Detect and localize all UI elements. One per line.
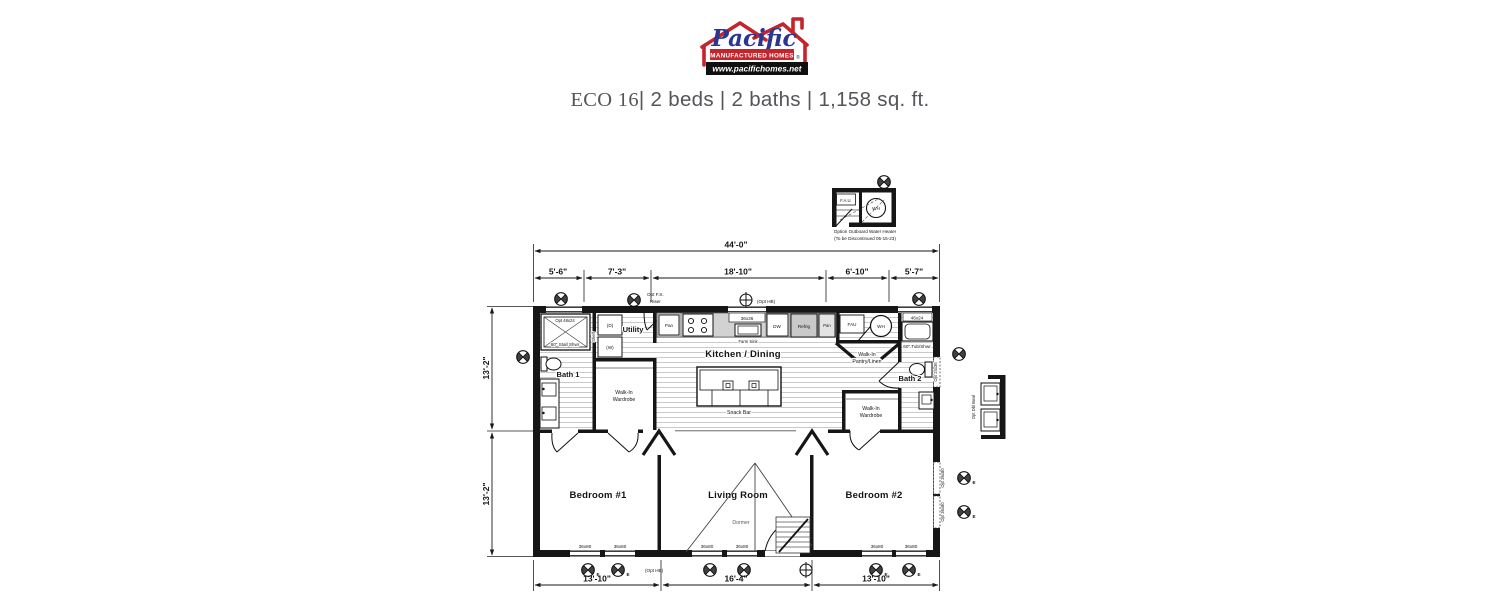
pantry-cabinet-label: Pan bbox=[665, 323, 674, 328]
egress-label: E bbox=[626, 572, 629, 577]
lower-rooms: Bedroom #1 Living Room Bedroom #2 Dormer bbox=[570, 463, 903, 553]
vent-fan-icon bbox=[555, 293, 568, 306]
bath2-window-label: 46x24 bbox=[911, 316, 924, 321]
dryer-label: (D) bbox=[607, 323, 614, 328]
egress-label: E bbox=[972, 480, 975, 485]
vent-fan-icon bbox=[704, 564, 717, 577]
pantry-label-1: Walk-In bbox=[858, 352, 876, 358]
dim-top-3: 18'-10" bbox=[724, 267, 752, 277]
dim-overall-width: 44'-0" bbox=[724, 240, 747, 250]
optional-window-label-36x80: Opt 36x80 bbox=[940, 468, 945, 488]
wardrobe2-label-1: Walk-In bbox=[862, 406, 880, 412]
window-size-label: 36x80 bbox=[701, 544, 714, 549]
room-label-living: Living Room bbox=[708, 490, 768, 501]
window-size-label: 36x80 bbox=[871, 544, 884, 549]
dim-bottom-1: 13'-10" bbox=[583, 574, 611, 584]
detail-wh-label: WH bbox=[872, 206, 880, 211]
room-label-bath2: Bath 2 bbox=[899, 374, 922, 383]
egress-label: E bbox=[972, 514, 975, 519]
vent-fan-icon bbox=[958, 472, 971, 485]
bottom-window-labels: 36x80 36x80 36x80 36x80 36x80 36x80 bbox=[579, 544, 918, 549]
wardrobe1-label-2: Wardrobe bbox=[613, 397, 636, 403]
vent-fan-icon bbox=[612, 564, 625, 577]
shower-label: 60" Stall Shwr bbox=[551, 342, 580, 347]
detail-caption-line1: Option Outboard Water Heater bbox=[834, 229, 897, 234]
tub-label: 60" Tub/Shwr bbox=[903, 344, 931, 349]
wardrobe1-label-1: Walk-In bbox=[615, 390, 633, 396]
opt-fs-riser-label-1: Opt F.S. bbox=[647, 292, 664, 297]
wardrobe2-label-2: Wardrobe bbox=[860, 413, 883, 419]
window-size-label: 36x80 bbox=[736, 544, 749, 549]
optional-window-label: Opt 48x24 bbox=[555, 318, 575, 323]
vent-fan-icon bbox=[628, 294, 641, 307]
room-label-utility: Utility bbox=[623, 325, 645, 334]
snack-bar-label: Snack Bar bbox=[727, 410, 751, 416]
bottom-wall-windows bbox=[570, 551, 926, 557]
dim-top-4: 6'-10" bbox=[845, 267, 868, 277]
fau-label: FAU bbox=[848, 322, 857, 327]
dormer-label: Dormer bbox=[732, 520, 750, 526]
vent-fan-icon bbox=[953, 348, 966, 361]
opt-hb-label: (Opt HB) bbox=[757, 299, 776, 304]
water-heater-option-detail: F.A.U. WH Option Outboard Water Heater (… bbox=[832, 176, 897, 241]
kitchen-window-label: 36x36 bbox=[741, 316, 754, 321]
dim-top-1: 5'-6" bbox=[549, 267, 567, 277]
dishwasher-label: DW bbox=[773, 324, 781, 329]
dbl-bowl-caption: Opt Dbl Bowl bbox=[971, 395, 976, 420]
vent-fan-icon bbox=[517, 351, 530, 364]
washer-label: (W) bbox=[606, 345, 614, 350]
hose-bib-icon bbox=[740, 292, 752, 308]
room-label-bedroom2: Bedroom #2 bbox=[846, 490, 903, 501]
dim-bottom-2: 16'-4" bbox=[724, 574, 747, 584]
window-size-label: 36x80 bbox=[579, 544, 592, 549]
room-label-bath1: Bath 1 bbox=[557, 370, 580, 379]
flyer-page: { "logo": { "brand": "Pacific", "tagline… bbox=[0, 0, 1500, 613]
refrigerator-label: Refrig bbox=[798, 324, 811, 329]
dim-left-1: 13'-2" bbox=[481, 356, 491, 379]
detail-fau-label: F.A.U. bbox=[840, 198, 851, 203]
window-size-label: 36x80 bbox=[905, 544, 918, 549]
egress-label: E bbox=[917, 572, 920, 577]
entry-stairs bbox=[776, 517, 810, 553]
vent-fan-icon bbox=[958, 506, 971, 519]
dim-top-5: 5'-7" bbox=[905, 267, 923, 277]
shelf-label: Shelf bbox=[591, 331, 596, 341]
detail-caption-line2: (To be Discontinued 05-15-23) bbox=[834, 236, 896, 241]
wh-label: WH bbox=[877, 324, 885, 329]
dim-top-2: 7'-3" bbox=[608, 267, 626, 277]
vent-fan-icon bbox=[878, 176, 891, 189]
farm-sink-label: Farm Sink bbox=[738, 339, 758, 344]
dim-left-2: 13'-2" bbox=[481, 482, 491, 505]
optional-window-label-24x36: Opt 24x36 bbox=[933, 362, 938, 382]
pantry-label-2: Pantry/Linen bbox=[852, 359, 881, 365]
window-size-label: 36x80 bbox=[614, 544, 627, 549]
opt-fs-riser-label-2: Riser bbox=[650, 299, 661, 304]
optional-window-label-36x80: Opt 36x80 bbox=[940, 502, 945, 522]
room-label-kitchen: Kitchen / Dining bbox=[705, 349, 781, 360]
vent-fan-icon bbox=[913, 293, 926, 306]
hose-bib-icon bbox=[800, 562, 812, 578]
dim-bottom-3: 13'-10" bbox=[862, 574, 890, 584]
pantry-cabinet-label-2: Pan bbox=[823, 323, 831, 328]
vent-fan-icon bbox=[903, 564, 916, 577]
floor-plan: F.A.U. WH Option Outboard Water Heater (… bbox=[0, 0, 1500, 613]
room-label-bedroom1: Bedroom #1 bbox=[570, 490, 627, 501]
dbl-bowl-vanity-detail: Opt Dbl Bowl bbox=[971, 375, 1006, 439]
